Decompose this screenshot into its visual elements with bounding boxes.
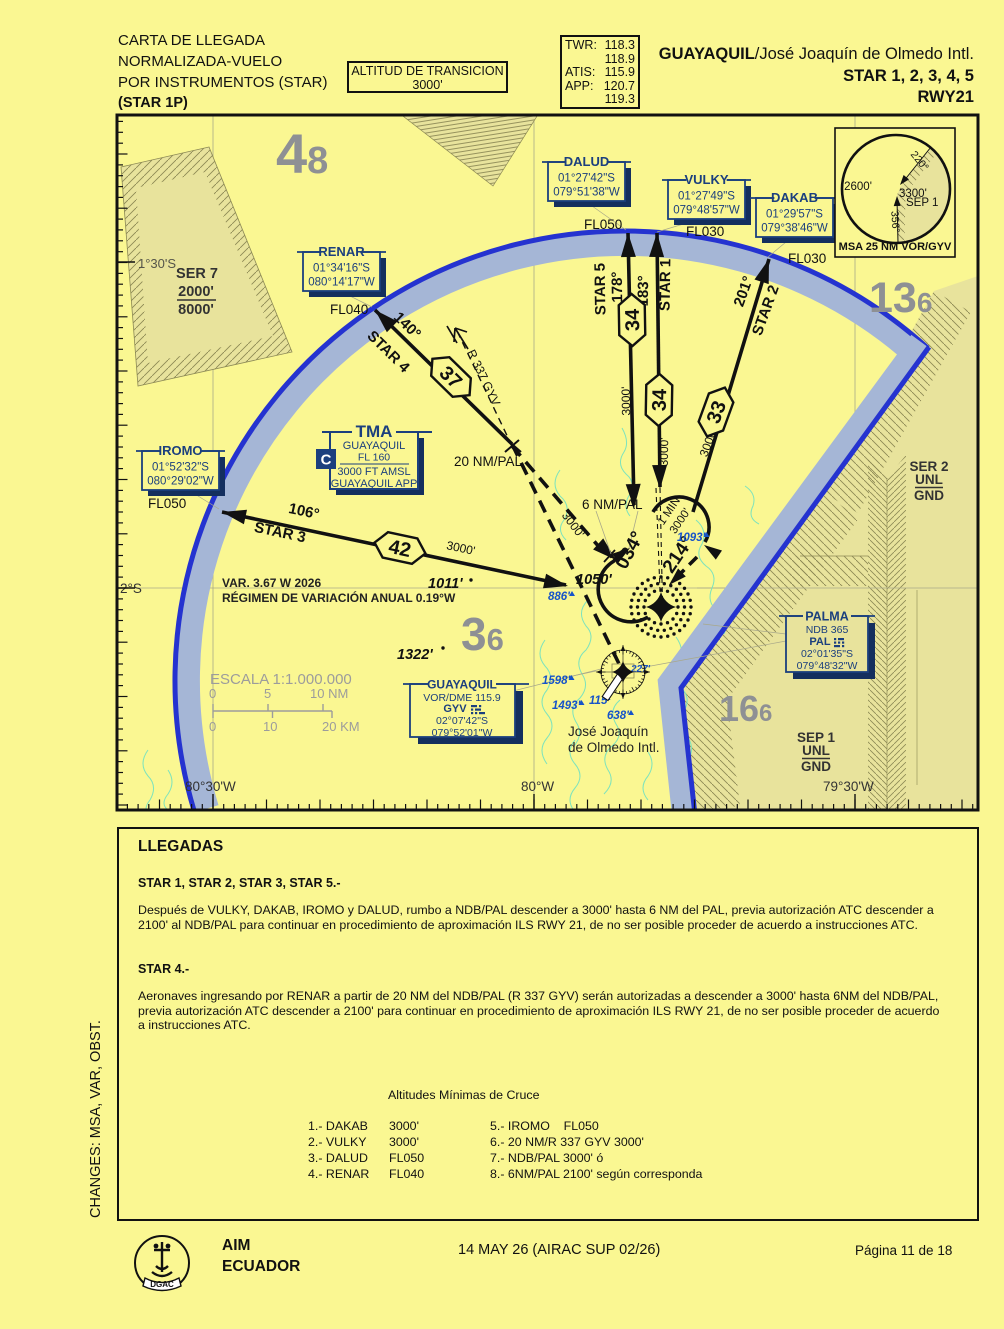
svg-text:20 NM/PAL: 20 NM/PAL: [454, 454, 523, 469]
svg-text:1050': 1050': [576, 572, 612, 588]
svg-text:3000': 3000': [559, 509, 588, 541]
svg-text:080°14'17"W: 080°14'17"W: [308, 276, 375, 288]
svg-text:FL 160: FL 160: [358, 452, 390, 464]
svg-text:1493': 1493': [552, 700, 582, 712]
svg-text:034°: 034°: [612, 528, 649, 573]
svg-text:RÉGIMEN DE VARIACIÓN ANUAL 0.1: RÉGIMEN DE VARIACIÓN ANUAL 0.19°W: [222, 590, 456, 605]
svg-text:José Joaquín: José Joaquín: [568, 724, 648, 739]
svg-text:SEP 1: SEP 1: [906, 197, 938, 209]
svg-text:UNL: UNL: [915, 472, 943, 487]
svg-text:8000': 8000': [178, 302, 214, 318]
svg-text:de Olmedo Intl.: de Olmedo Intl.: [568, 740, 660, 755]
svg-text:FL040: FL040: [330, 302, 368, 317]
svg-text:GUAYAQUIL: GUAYAQUIL: [343, 440, 406, 452]
svg-text:079°51'38"W: 079°51'38"W: [553, 186, 620, 198]
svg-text:STAR 3: STAR 3: [253, 519, 308, 546]
svg-text:080°29'02"W: 080°29'02"W: [147, 475, 214, 487]
svg-text:356°: 356°: [888, 211, 901, 234]
svg-text:TMA: TMA: [356, 422, 393, 441]
svg-text:FL030: FL030: [686, 224, 724, 239]
svg-text:DALUD: DALUD: [564, 154, 610, 169]
svg-text:227': 227': [630, 664, 651, 675]
svg-text:NDB 365: NDB 365: [806, 624, 849, 636]
svg-text:1011': 1011': [428, 576, 463, 592]
svg-text:01°27'42"S: 01°27'42"S: [558, 173, 615, 185]
svg-text:SER 7: SER 7: [176, 266, 218, 282]
svg-text:3000': 3000': [619, 386, 634, 415]
svg-text:079°48'57"W: 079°48'57"W: [673, 204, 740, 216]
svg-text:2600': 2600': [844, 181, 872, 193]
svg-text:106°: 106°: [287, 500, 321, 523]
svg-text:1322': 1322': [397, 647, 433, 663]
svg-text:80°W: 80°W: [521, 779, 554, 794]
svg-text:GYV: GYV: [443, 703, 467, 715]
svg-text:DGAC: DGAC: [150, 1280, 174, 1289]
svg-text:20 KM: 20 KM: [322, 719, 360, 734]
svg-text:2000': 2000': [178, 284, 214, 300]
svg-text:34: 34: [649, 388, 671, 412]
svg-text:36: 36: [461, 608, 504, 660]
svg-text:1598': 1598': [542, 675, 572, 687]
svg-text:RENAR: RENAR: [318, 244, 365, 259]
svg-text:VULKY: VULKY: [684, 172, 728, 187]
svg-text:PAL: PAL: [809, 636, 830, 648]
svg-text:GND: GND: [801, 759, 831, 774]
svg-text:079°38'46"W: 079°38'46"W: [761, 222, 828, 234]
svg-text:UNL: UNL: [802, 743, 830, 758]
svg-text:3000': 3000': [445, 538, 476, 558]
svg-text:136: 136: [869, 274, 932, 322]
svg-text:10 NM: 10 NM: [310, 686, 348, 701]
svg-text:PALMA: PALMA: [805, 610, 849, 624]
svg-text:3000 FT AMSL: 3000 FT AMSL: [337, 466, 410, 478]
svg-text:DAKAB: DAKAB: [771, 190, 818, 205]
svg-text:FL050: FL050: [584, 217, 622, 232]
svg-text:GUAYAQUIL APP: GUAYAQUIL APP: [331, 478, 418, 490]
svg-text:1093': 1093': [677, 532, 707, 544]
svg-text:079°52'01"W: 079°52'01"W: [432, 727, 493, 739]
svg-text:886': 886': [548, 591, 571, 603]
svg-text:34: 34: [622, 308, 644, 332]
svg-text:48: 48: [276, 122, 328, 185]
svg-text:STAR 1: STAR 1: [657, 259, 675, 312]
svg-text:01°52'32"S: 01°52'32"S: [152, 462, 209, 474]
svg-text:6 NM/PAL: 6 NM/PAL: [582, 497, 643, 512]
svg-text:079°48'32"W: 079°48'32"W: [797, 660, 858, 672]
svg-text:0: 0: [209, 686, 216, 701]
svg-text:201°: 201°: [730, 274, 757, 309]
svg-text:IROMO: IROMO: [158, 443, 202, 458]
svg-text:3000': 3000': [657, 437, 672, 466]
svg-text:80°30'W: 80°30'W: [185, 779, 236, 794]
svg-text:5: 5: [264, 686, 271, 701]
svg-text:0: 0: [209, 719, 216, 734]
svg-text:178°: 178°: [609, 271, 627, 302]
svg-text:10: 10: [263, 719, 277, 734]
svg-text:FL030: FL030: [788, 251, 826, 266]
svg-text:MSA 25 NM VOR/GYV: MSA 25 NM VOR/GYV: [839, 241, 952, 253]
svg-text:02°07'42"S: 02°07'42"S: [436, 715, 488, 727]
svg-text:GUAYAQUIL: GUAYAQUIL: [427, 678, 497, 692]
svg-text:01°34'16"S: 01°34'16"S: [313, 263, 370, 275]
svg-text:STAR 5: STAR 5: [592, 263, 610, 316]
svg-text:01°27'49"S: 01°27'49"S: [678, 191, 735, 203]
svg-text:GND: GND: [914, 488, 944, 503]
svg-text:638': 638': [607, 710, 630, 722]
svg-text:02°01'35"S: 02°01'35"S: [801, 648, 853, 660]
svg-text:FL050: FL050: [148, 496, 186, 511]
svg-text:VAR. 3.67 W 2026: VAR. 3.67 W 2026: [222, 576, 321, 590]
svg-text:1°30'S: 1°30'S: [138, 256, 176, 271]
svg-text:C: C: [321, 452, 332, 469]
svg-text:79°30'W: 79°30'W: [823, 779, 874, 794]
svg-text:42: 42: [387, 536, 413, 562]
svg-text:01°29'57"S: 01°29'57"S: [766, 209, 823, 221]
